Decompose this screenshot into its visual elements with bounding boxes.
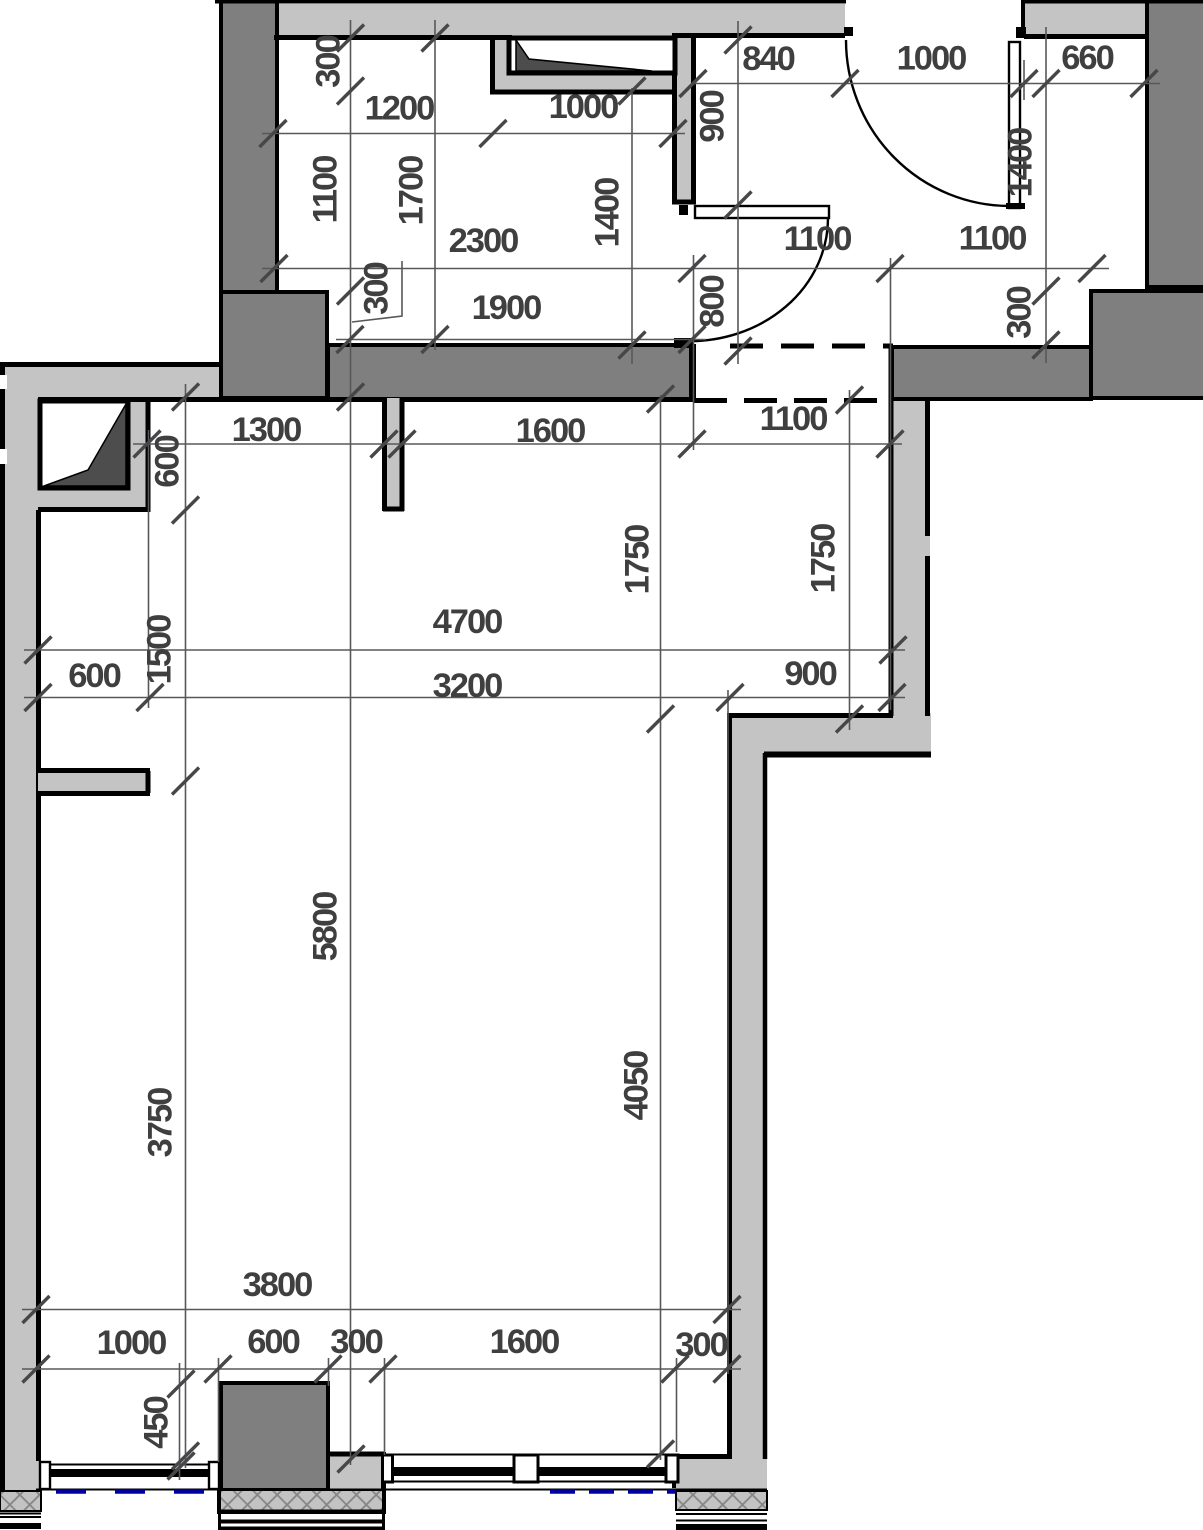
svg-text:1300: 1300 [232,411,302,449]
svg-text:800: 800 [694,275,732,327]
svg-text:900: 900 [694,90,732,142]
svg-text:660: 660 [1061,39,1113,77]
svg-text:900: 900 [784,655,836,693]
svg-text:5800: 5800 [307,892,345,962]
svg-text:300: 300 [358,262,396,314]
svg-text:1500: 1500 [141,615,179,685]
svg-text:1700: 1700 [393,156,431,226]
svg-text:1000: 1000 [897,40,967,78]
svg-text:300: 300 [1001,286,1039,338]
svg-text:3200: 3200 [433,667,503,705]
svg-text:600: 600 [247,1323,299,1361]
svg-text:4050: 4050 [618,1051,656,1121]
svg-text:300: 300 [675,1326,727,1364]
svg-text:1000: 1000 [97,1324,167,1362]
svg-text:2300: 2300 [449,222,519,260]
svg-text:1400: 1400 [589,178,627,248]
svg-text:600: 600 [149,435,187,487]
svg-text:300: 300 [330,1323,382,1361]
svg-text:600: 600 [68,657,120,695]
svg-text:1900: 1900 [472,289,542,327]
svg-text:1000: 1000 [549,88,619,126]
svg-text:3750: 3750 [142,1088,180,1158]
svg-text:1100: 1100 [784,220,852,258]
svg-text:1600: 1600 [516,412,586,450]
svg-text:1100: 1100 [307,156,345,224]
svg-text:4700: 4700 [433,603,503,641]
svg-text:300: 300 [310,35,348,87]
svg-text:450: 450 [138,1396,176,1448]
svg-text:3800: 3800 [243,1266,313,1304]
svg-text:1200: 1200 [365,90,435,128]
svg-text:1100: 1100 [760,400,828,438]
svg-text:1100: 1100 [959,220,1027,258]
svg-text:1400: 1400 [1002,128,1040,198]
svg-text:840: 840 [742,40,794,78]
svg-text:1750: 1750 [805,524,843,594]
svg-text:1750: 1750 [619,525,657,595]
svg-text:1600: 1600 [490,1323,560,1361]
